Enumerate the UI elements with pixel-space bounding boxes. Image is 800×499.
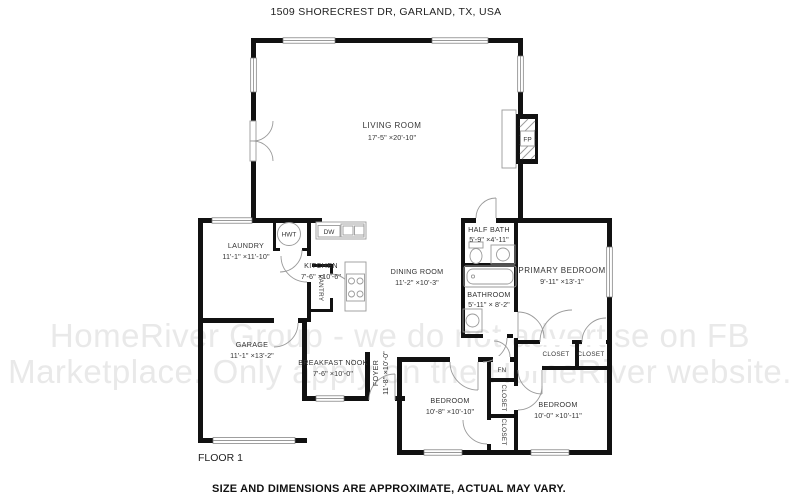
half-bath-name: HALF BATH — [468, 225, 510, 234]
breakfast-nook-dims: 7'-6" ×10'-0" — [313, 369, 353, 378]
garage-door — [213, 438, 295, 444]
window — [212, 218, 252, 223]
primary-closet-right-label: CLOSET — [578, 351, 605, 358]
hwt-label: HWT — [282, 232, 297, 239]
dining-dims: 11'-2" ×10'-3" — [395, 278, 439, 287]
disclaimer: SIZE AND DIMENSIONS ARE APPROXIMATE, ACT… — [212, 483, 566, 495]
bedroom-left-name: BEDROOM — [430, 396, 469, 405]
kitchen-name: KITCHEN — [304, 261, 338, 270]
bedroom-right-dims: 10'-0" ×10'-11" — [534, 411, 582, 420]
window — [251, 58, 257, 92]
dining-name: DINING ROOM — [391, 267, 444, 276]
hall-closet-bottom-label: CLOSET — [500, 419, 507, 446]
bathroom-dims: 5'-11" × 8'-2" — [468, 300, 510, 309]
hall-closet-top-label: CLOSET — [500, 385, 507, 412]
laundry-name: LAUNDRY — [228, 241, 264, 250]
living-room-name: LIVING ROOM — [363, 121, 422, 130]
floor-label: FLOOR 1 — [198, 452, 243, 464]
stove — [345, 262, 366, 311]
window — [283, 38, 335, 43]
fireplace-label: FP — [523, 137, 531, 144]
half-bath-dims: 5'-9" ×4'-11" — [469, 235, 509, 244]
room-half-bath: HALF BATH 5'-9" ×4'-11" — [468, 225, 510, 244]
garage-name: GARAGE — [236, 340, 269, 349]
floorplan-page: HomeRiver Group - we do not advertise on… — [0, 0, 800, 499]
room-bathroom: BATHROOM 5'-11" × 8'-2" — [467, 290, 510, 309]
foyer-dims: 11'-8" ×10'-0" — [381, 351, 390, 395]
window — [531, 450, 569, 455]
window — [607, 247, 613, 297]
address-title: 1509 SHORECREST DR, GARLAND, TX, USA — [271, 6, 502, 18]
primary-bedroom-name: PRIMARY BEDROOM — [518, 266, 605, 275]
breakfast-nook-name: BREAKFAST NOOK — [298, 358, 368, 367]
water-heater: HWT — [278, 223, 301, 246]
primary-bedroom-dims: 9'-11" ×13'-1" — [540, 277, 584, 286]
dishwasher-label: DW — [324, 229, 336, 236]
bathroom-name: BATHROOM — [467, 290, 510, 299]
kitchen-counter: DW — [316, 222, 366, 239]
window — [518, 56, 524, 92]
pantry-label: PANTRY — [317, 275, 324, 302]
garage-dims: 11'-1" ×13'-2" — [230, 351, 274, 360]
window — [424, 450, 462, 455]
floorplan-image: HomeRiver Group - we do not advertise on… — [0, 0, 800, 499]
window — [432, 38, 488, 43]
bedroom-left-dims: 10'-8" ×10'-10" — [426, 407, 475, 416]
furnace-label: FN — [498, 367, 507, 374]
window — [316, 396, 344, 401]
living-room-dims: 17'-5" ×20'-10" — [368, 133, 417, 142]
watermark-line1: HomeRiver Group - we do not advertise on… — [50, 317, 750, 354]
bedroom-right-name: BEDROOM — [538, 400, 577, 409]
laundry-dims: 11'-1" ×11'-10" — [222, 252, 270, 261]
foyer-name: FOYER — [371, 360, 380, 386]
primary-closet-left-label: CLOSET — [543, 351, 570, 358]
